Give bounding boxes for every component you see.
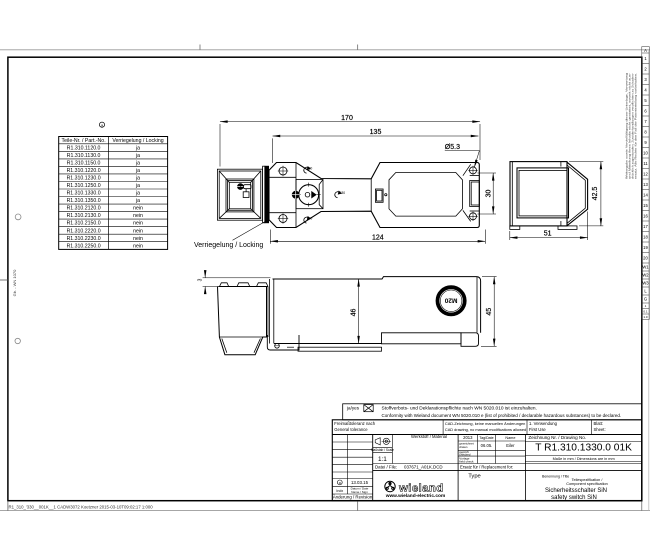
svg-text:First Use: First Use [529,427,546,432]
svg-text:G: G [644,297,647,302]
svg-text:R1.310.2120.0: R1.310.2120.0 [67,206,101,212]
svg-text:ja/yes: ja/yes [346,406,360,411]
svg-text:42.5: 42.5 [592,187,599,201]
svg-text:drawn: drawn [459,445,468,449]
svg-text:0.1: 0.1 [643,310,648,314]
svg-text:Blatt:: Blatt: [594,421,604,426]
svg-text:14: 14 [643,192,648,197]
svg-text:a: a [339,481,341,485]
svg-text:www.wieland-electric.com: www.wieland-electric.com [385,493,446,499]
svg-text:Benennung / Title: Benennung / Title [542,475,569,479]
svg-text:Zeichnung Nr. / Drawing No.: Zeichnung Nr. / Drawing No. [528,435,586,440]
svg-text:R1.310.2130.0: R1.310.2130.0 [67,213,101,219]
svg-text:Ø5.3: Ø5.3 [445,144,460,151]
svg-text:ja: ja [135,191,140,197]
svg-text:19: 19 [643,245,648,250]
svg-text:124: 124 [372,235,384,242]
svg-text:R1.310.1350.0: R1.310.1350.0 [67,198,101,204]
svg-text:nein: nein [133,243,143,249]
svg-text:13.03.15: 13.03.15 [351,480,369,485]
svg-text:R1.310.1130.0: R1.310.1130.0 [67,153,101,159]
svg-text:90: 90 [309,216,313,220]
svg-text:Sicherheitsschalter SiN: Sicherheitsschalter SiN [545,488,607,494]
svg-text:45: 45 [486,308,493,316]
svg-text:nein: nein [133,221,143,227]
svg-text:ja: ja [135,153,140,159]
svg-text:Maße in mm / Dimensions are in: Maße in mm / Dimensions are in mm [553,457,615,461]
svg-text:ja: ja [135,198,140,204]
svg-text:12: 12 [643,171,648,176]
svg-text:Sheet:: Sheet: [594,427,606,432]
svg-text:20: 20 [643,255,648,260]
svg-text:wieland: wieland [398,483,444,495]
svg-text:Werkstoff / Material: Werkstoff / Material [411,434,447,439]
svg-text:field check: field check [459,459,474,463]
svg-text:ja: ja [135,176,140,182]
svg-text:ja: ja [135,145,140,151]
svg-text:W3: W3 [642,281,649,286]
svg-text:Teile-Nr. / Part.-No.: Teile-Nr. / Part.-No. [62,138,106,144]
svg-text:Name / Sign: Name / Sign [351,490,368,494]
svg-text:Component specification: Component specification [566,482,608,486]
svg-text:R1.310.2150.0: R1.310.2150.0 [67,221,101,227]
svg-text:nein: nein [133,206,143,212]
svg-text:30: 30 [486,190,493,198]
svg-text:Type: Type [468,474,481,480]
svg-text:R1.310.2250.0: R1.310.2250.0 [67,243,101,249]
svg-text:M20: M20 [444,296,457,303]
svg-text:Änderung / Revision: Änderung / Revision [333,495,373,500]
svg-text:170: 170 [341,115,353,122]
svg-text:1.0: 1.0 [643,315,648,319]
svg-text:Name: Name [505,436,515,440]
svg-text:1. Verwendung: 1. Verwendung [529,421,558,426]
svg-text:037671_A01K.DCD: 037671_A01K.DCD [404,464,443,469]
svg-text:W1: W1 [642,265,649,270]
svg-text:Ersatz für / Replacement for:: Ersatz für / Replacement for: [460,464,513,469]
svg-text:Teilespezifikation /: Teilespezifikation / [572,478,604,482]
svg-text:Indx: Indx [336,489,343,493]
svg-text:R1.310.2230.0: R1.310.2230.0 [67,236,101,242]
svg-text:R1.310.1250.0: R1.310.1250.0 [67,183,101,189]
svg-text:ja: ja [135,183,140,189]
svg-text:Conformity with Wieland docume: Conformity with Wieland document WN 5020… [382,413,622,418]
svg-text:Maßstab / Scale: Maßstab / Scale [371,448,394,452]
svg-text:safety switch SiN: safety switch SiN [551,495,597,501]
svg-text:2013: 2013 [463,435,473,440]
svg-text:13: 13 [643,182,648,187]
svg-text:90: 90 [309,167,313,171]
svg-text:ja: ja [135,161,140,167]
svg-text:CAD-Zeichnung, keine manuellen: CAD-Zeichnung, keine manuellen Änderunge… [445,421,525,426]
svg-text:17: 17 [643,224,648,229]
svg-text:nein: nein [133,228,143,234]
svg-text:Tag/Date: Tag/Date [479,436,493,440]
svg-text:CAD drawing, no manual modific: CAD drawing, no manual modifications all… [445,427,526,432]
svg-text:T R1.310.1330.0 01K: T R1.310.1330.0 01K [535,442,632,453]
svg-text:11: 11 [643,161,648,166]
svg-text:51: 51 [544,231,552,238]
svg-text:Gb. - WN 1070: Gb. - WN 1070 [12,269,17,296]
svg-text:Datei / File:: Datei / File: [375,464,397,469]
svg-text:180: 180 [340,191,346,195]
svg-text:Freimaßtoleranz nach: Freimaßtoleranz nach [334,421,375,426]
svg-text:R1.310.1150.0: R1.310.1150.0 [67,161,101,167]
svg-text:15: 15 [643,203,648,208]
svg-text:R1.310.2220.0: R1.310.2220.0 [67,228,101,234]
svg-text:R1_310_'330__001K__1 CADW3072: R1_310_'330__001K__1 CADW3072 Koetzner 2… [9,505,154,510]
svg-text:10: 10 [643,150,648,155]
svg-text:R1.310.1330.0: R1.310.1330.0 [67,191,101,197]
svg-text:ja: ja [135,168,140,174]
svg-text:Eiler: Eiler [506,443,515,448]
svg-text:General tolerance: General tolerance [334,427,368,432]
svg-text:3: 3 [198,278,204,281]
svg-text:Verriegelung / Locking: Verriegelung / Locking [112,138,163,144]
svg-text:46: 46 [350,309,357,317]
svg-text:A: A [644,48,647,53]
svg-text:16: 16 [643,213,648,218]
svg-text:nein: nein [133,236,143,242]
svg-text:R1.310.1220.0: R1.310.1220.0 [67,168,101,174]
svg-text:06.05.: 06.05. [481,443,493,448]
svg-text:1:1: 1:1 [378,456,387,463]
svg-text:R1.310.1120.0: R1.310.1120.0 [67,145,101,151]
svg-text:ersatz. Alle Rechte für den Fa: ersatz. Alle Rechte für den Fall der Pat… [634,73,638,179]
svg-text:Verriegelung / Locking: Verriegelung / Locking [194,242,263,249]
svg-text:nein: nein [133,213,143,219]
svg-text:Stoffverbots- und Deklarations: Stoffverbots- und Deklarationspflichte n… [382,405,537,411]
svg-text:W2: W2 [642,273,649,278]
svg-text:135: 135 [370,129,382,136]
svg-text:R1.310.1230.0: R1.310.1230.0 [67,176,101,182]
svg-text:18: 18 [643,234,648,239]
